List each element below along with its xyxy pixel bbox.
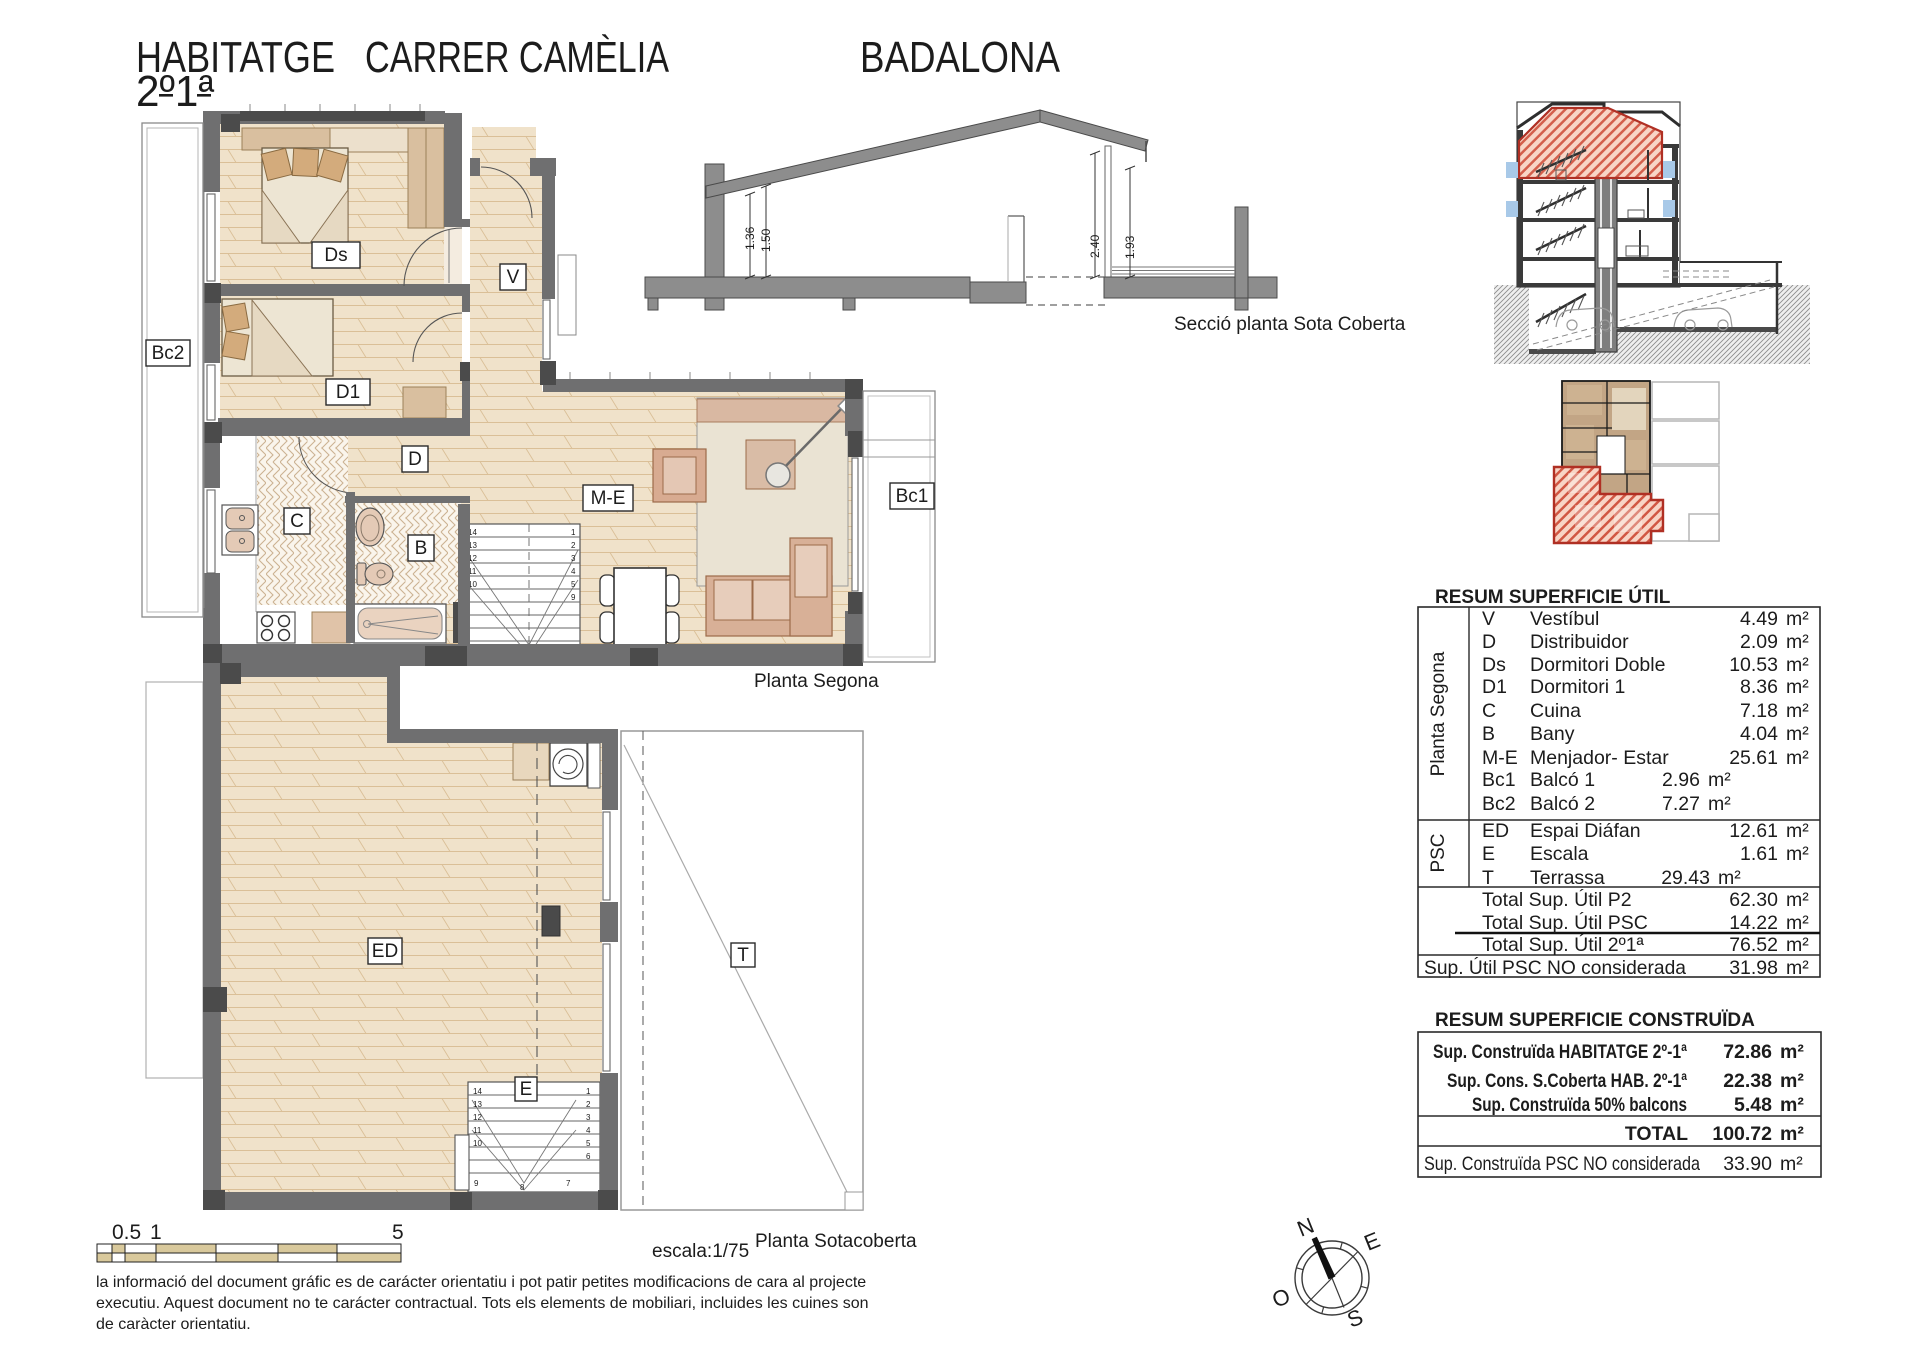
svg-text:m²: m²: [1780, 1123, 1804, 1145]
svg-text:RESUM SUPERFICIE ÚTIL: RESUM SUPERFICIE ÚTIL: [1435, 586, 1671, 608]
svg-text:Balcó 1: Balcó 1: [1530, 769, 1595, 791]
svg-text:2: 2: [586, 1100, 591, 1109]
svg-text:m²: m²: [1786, 843, 1809, 865]
svg-text:Terrassa: Terrassa: [1530, 867, 1605, 889]
svg-text:Dormitori 1: Dormitori 1: [1530, 676, 1625, 698]
svg-text:Bc1: Bc1: [1482, 769, 1516, 791]
svg-text:5.48: 5.48: [1734, 1094, 1772, 1116]
svg-text:E: E: [1482, 843, 1495, 865]
svg-text:3: 3: [571, 554, 576, 563]
svg-text:m²: m²: [1780, 1070, 1804, 1092]
svg-text:B: B: [415, 538, 428, 559]
svg-text:Total Sup. Útil P2: Total Sup. Útil P2: [1482, 888, 1632, 911]
svg-text:72.86: 72.86: [1723, 1041, 1772, 1063]
svg-text:Espai Diáfan: Espai Diáfan: [1530, 820, 1641, 842]
svg-text:T: T: [737, 945, 749, 966]
svg-text:m²: m²: [1786, 747, 1809, 769]
svg-text:3: 3: [586, 1113, 591, 1122]
svg-text:Menjador- Estar: Menjador- Estar: [1530, 747, 1669, 769]
svg-text:E: E: [520, 1079, 533, 1100]
svg-text:m²: m²: [1786, 957, 1809, 979]
svg-text:Planta Segona: Planta Segona: [1428, 651, 1449, 776]
svg-text:12.61: 12.61: [1729, 820, 1778, 842]
svg-text:4.04: 4.04: [1740, 723, 1778, 745]
svg-text:1.93: 1.93: [1123, 235, 1137, 259]
svg-text:Planta Sotacoberta: Planta Sotacoberta: [755, 1231, 917, 1252]
svg-text:C: C: [290, 511, 304, 532]
svg-text:2.09: 2.09: [1740, 631, 1778, 653]
svg-text:Sup. Cons. S.Coberta HAB. 2º-1: Sup. Cons. S.Coberta HAB. 2º-1ª: [1447, 1070, 1688, 1092]
svg-text:escala:1/75: escala:1/75: [652, 1241, 749, 1262]
svg-text:M-E: M-E: [1482, 747, 1518, 769]
svg-text:10.53: 10.53: [1729, 654, 1778, 676]
svg-text:4: 4: [586, 1126, 591, 1135]
svg-text:2: 2: [571, 541, 576, 550]
svg-text:1: 1: [571, 528, 576, 537]
svg-text:Secció planta Sota Coberta: Secció planta Sota Coberta: [1174, 314, 1406, 335]
svg-text:7: 7: [566, 1179, 571, 1188]
svg-text:14.22: 14.22: [1729, 912, 1778, 934]
svg-text:2.96: 2.96: [1662, 769, 1700, 791]
svg-text:100.72: 100.72: [1712, 1123, 1772, 1145]
svg-text:Vestíbul: Vestíbul: [1530, 608, 1599, 630]
svg-text:0.5: 0.5: [112, 1221, 141, 1244]
svg-text:10: 10: [473, 1139, 482, 1148]
svg-text:62.30: 62.30: [1729, 889, 1778, 911]
svg-text:Sup. Construïda PSC NO conside: Sup. Construïda PSC NO considerada: [1424, 1153, 1700, 1175]
svg-text:PSC: PSC: [1428, 833, 1449, 872]
svg-text:Planta Segona: Planta Segona: [754, 671, 879, 692]
svg-text:m²: m²: [1780, 1041, 1804, 1063]
svg-text:Bc1: Bc1: [896, 486, 929, 507]
svg-text:m²: m²: [1786, 820, 1809, 842]
svg-text:13: 13: [473, 1100, 482, 1109]
svg-text:m²: m²: [1786, 676, 1809, 698]
svg-text:la informació del document grá: la informació del document gráfic es de …: [96, 1274, 866, 1291]
svg-text:D1: D1: [1482, 676, 1507, 698]
svg-text:2.40: 2.40: [1088, 234, 1102, 258]
svg-text:m²: m²: [1708, 769, 1731, 791]
svg-text:m²: m²: [1786, 654, 1809, 676]
svg-text:m²: m²: [1786, 608, 1809, 630]
svg-text:8: 8: [520, 1183, 525, 1192]
svg-text:TOTAL: TOTAL: [1625, 1123, 1688, 1145]
svg-text:76.52: 76.52: [1729, 934, 1778, 956]
svg-text:Bany: Bany: [1530, 723, 1575, 745]
svg-text:m²: m²: [1718, 867, 1741, 889]
svg-text:Escala: Escala: [1530, 843, 1589, 865]
svg-text:1: 1: [150, 1221, 162, 1244]
svg-text:m²: m²: [1780, 1153, 1803, 1175]
svg-text:12: 12: [473, 1113, 482, 1122]
svg-text:29.43: 29.43: [1661, 867, 1710, 889]
svg-text:22.38: 22.38: [1723, 1070, 1772, 1092]
svg-text:executiu. Aquest document no t: executiu. Aquest document no te carácter…: [96, 1295, 869, 1312]
svg-text:Bc2: Bc2: [152, 343, 185, 364]
svg-text:14: 14: [473, 1087, 482, 1096]
svg-text:1: 1: [586, 1087, 591, 1096]
svg-text:ED: ED: [1482, 820, 1509, 842]
svg-text:D: D: [1482, 631, 1496, 653]
svg-text:m²: m²: [1708, 793, 1731, 815]
svg-text:5: 5: [586, 1139, 591, 1148]
svg-text:C: C: [1482, 700, 1496, 722]
svg-text:11: 11: [473, 1126, 482, 1135]
svg-text:Sup. Útil PSC NO considerada: Sup. Útil PSC NO considerada: [1424, 956, 1686, 979]
svg-text:Total Sup. Útil PSC: Total Sup. Útil PSC: [1482, 911, 1648, 934]
svg-text:RESUM SUPERFICIE CONSTRUÏDA: RESUM SUPERFICIE CONSTRUÏDA: [1435, 1010, 1755, 1031]
svg-text:BADALONA: BADALONA: [860, 33, 1061, 82]
svg-text:m²: m²: [1786, 912, 1809, 934]
svg-text:4: 4: [571, 567, 576, 576]
svg-text:1.50: 1.50: [759, 228, 773, 252]
svg-text:25.61: 25.61: [1729, 747, 1778, 769]
svg-text:de caràcter orientatiu.: de caràcter orientatiu.: [96, 1316, 251, 1333]
svg-text:Dormitori Doble: Dormitori Doble: [1530, 654, 1665, 676]
svg-text:1.36: 1.36: [743, 226, 757, 250]
svg-text:Ds: Ds: [1482, 654, 1506, 676]
svg-text:8.36: 8.36: [1740, 676, 1778, 698]
svg-text:ED: ED: [372, 941, 398, 962]
svg-text:2º1ª: 2º1ª: [136, 67, 215, 116]
svg-text:m²: m²: [1786, 934, 1809, 956]
svg-text:4.49: 4.49: [1740, 608, 1778, 630]
svg-text:7.27: 7.27: [1662, 793, 1700, 815]
svg-text:5: 5: [392, 1221, 404, 1244]
svg-text:m²: m²: [1786, 889, 1809, 911]
svg-text:Sup. Construïda HABITATGE 2º-1: Sup. Construïda HABITATGE 2º-1ª: [1433, 1041, 1688, 1063]
svg-text:T: T: [1482, 867, 1494, 889]
svg-text:5: 5: [571, 580, 576, 589]
svg-text:6: 6: [586, 1152, 591, 1161]
svg-text:D: D: [408, 449, 422, 470]
svg-text:Bc2: Bc2: [1482, 793, 1516, 815]
svg-text:7.18: 7.18: [1740, 700, 1778, 722]
svg-text:Cuina: Cuina: [1530, 700, 1581, 722]
svg-text:9: 9: [474, 1179, 479, 1188]
svg-text:m²: m²: [1786, 700, 1809, 722]
svg-text:Distribuidor: Distribuidor: [1530, 631, 1629, 653]
svg-text:m²: m²: [1786, 631, 1809, 653]
svg-text:M-E: M-E: [591, 488, 626, 509]
svg-text:D1: D1: [336, 382, 360, 403]
svg-text:Ds: Ds: [324, 245, 347, 266]
svg-text:m²: m²: [1780, 1094, 1804, 1116]
svg-text:B: B: [1482, 723, 1495, 745]
svg-text:m²: m²: [1786, 723, 1809, 745]
svg-text:1.61: 1.61: [1740, 843, 1778, 865]
svg-text:9: 9: [571, 593, 576, 602]
svg-text:Balcó 2: Balcó 2: [1530, 793, 1595, 815]
svg-text:Total Sup. Útil 2º1ª: Total Sup. Útil 2º1ª: [1482, 933, 1645, 956]
svg-text:31.98: 31.98: [1729, 957, 1778, 979]
svg-text:V: V: [507, 267, 520, 288]
svg-text:V: V: [1482, 608, 1495, 630]
svg-text:CARRER CAMÈLIA: CARRER CAMÈLIA: [365, 33, 670, 82]
svg-text:Sup. Construïda 50% balcons: Sup. Construïda 50% balcons: [1472, 1094, 1687, 1116]
svg-text:33.90: 33.90: [1723, 1153, 1772, 1175]
